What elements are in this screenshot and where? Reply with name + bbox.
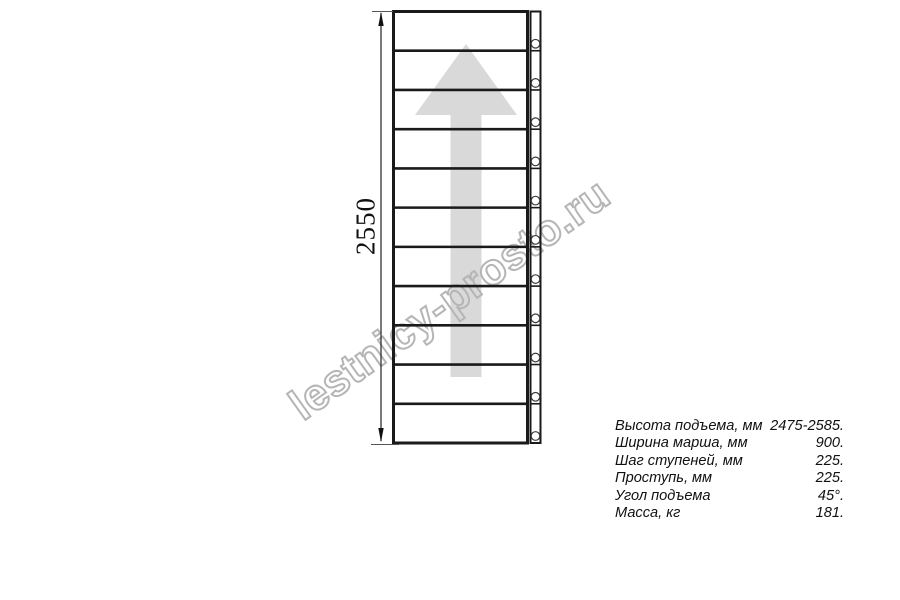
spec-row-height: Высота подъема, мм 2475-2585. bbox=[615, 418, 844, 435]
spec-table: Высота подъема, мм 2475-2585. Ширина мар… bbox=[615, 418, 844, 522]
spec-value: 225. bbox=[816, 453, 844, 470]
spec-value: 900. bbox=[816, 435, 844, 452]
spec-label: Ширина марша, мм bbox=[615, 435, 748, 452]
spec-label: Высота подъема, мм bbox=[615, 418, 763, 435]
spec-row-width: Ширина марша, мм 900. bbox=[615, 435, 844, 452]
spec-value: 181. bbox=[816, 505, 844, 522]
spec-row-mass: Масса, кг 181. bbox=[615, 505, 844, 522]
spec-row-angle: Угол подъема 45°. bbox=[615, 488, 844, 505]
spec-label: Угол подъема bbox=[615, 488, 710, 505]
spec-value: 2475-2585. bbox=[770, 418, 844, 435]
spec-row-step: Шаг ступеней, мм 225. bbox=[615, 453, 844, 470]
spec-value: 225. bbox=[816, 470, 844, 487]
spec-label: Масса, кг bbox=[615, 505, 680, 522]
dimension-label: 2550 bbox=[351, 197, 382, 255]
spec-value: 45°. bbox=[818, 488, 844, 505]
spec-label: Шаг ступеней, мм bbox=[615, 453, 743, 470]
spec-label: Проступь, мм bbox=[615, 470, 712, 487]
drawing-canvas: lestnicy-prosto.ru 2550 Высота подъема, … bbox=[0, 0, 900, 600]
spec-row-tread: Проступь, мм 225. bbox=[615, 470, 844, 487]
